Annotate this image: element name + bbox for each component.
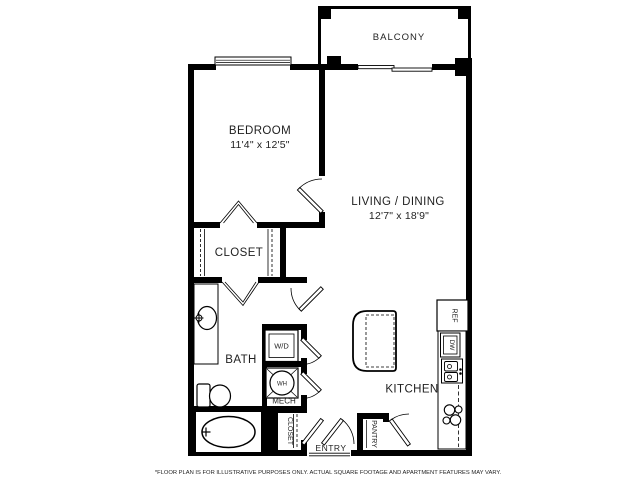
bedroom-door [297,179,323,213]
wall [188,64,216,70]
wall [267,413,278,456]
mech-door [301,372,322,399]
wall [188,64,194,456]
closet-bifold-doors-top [220,201,257,223]
wall [262,406,301,413]
bedroom-window [215,57,291,65]
wall [257,222,325,228]
bath-vanity [194,284,218,364]
wall [319,64,325,176]
washer-dryer-label: W/D [274,342,289,351]
wall [301,358,307,374]
bedroom-label: BEDROOM [229,125,291,137]
bathtub [196,412,261,452]
wall [301,395,307,413]
pantry-label: PANTRY [370,420,377,448]
wall [351,450,472,456]
entry-closet-label: CLOSET [286,417,293,446]
kitchen-island [353,311,396,371]
wall [262,324,307,330]
wall [188,222,220,228]
water-heater-label: WH [277,382,287,388]
walk-in-closet-label: CLOSET [215,247,263,259]
dishwasher-label: DW [448,340,455,352]
wall [466,70,472,456]
fridge-label: REF [451,309,458,323]
wall [383,413,389,422]
wall [258,277,307,283]
wall [280,228,286,282]
entry-label: ENTRY [315,443,346,453]
disclaimer-text: *FLOOR PLAN IS FOR ILLUSTRATIVE PURPOSES… [155,470,502,476]
living-dining-label: LIVING / DINING [351,196,445,208]
bedroom-dims: 11'4" x 12'5" [230,139,289,151]
wall [357,419,363,456]
mech-label: MECH [272,397,296,406]
wall [432,64,457,70]
entry-closet-shelf [294,414,298,448]
bath-label: BATH [225,354,256,366]
entry-closet-door [302,418,324,445]
closet-bifold-doors-bottom [222,282,259,306]
living-dining-dims: 12'7" x 18'9" [369,210,429,222]
toilet [197,384,231,407]
floor-plan: BALCONY BEDROOM 11'4" x 12'5" LIVING / D… [0,0,640,480]
wall [188,277,222,283]
hall-door [291,287,323,311]
balcony-label: BALCONY [373,32,425,43]
balcony-sliding-door [358,66,432,72]
kitchen-sink [442,359,463,383]
pantry-door [389,414,410,446]
wall [301,324,307,340]
kitchen-label: KITCHEN [385,384,438,396]
